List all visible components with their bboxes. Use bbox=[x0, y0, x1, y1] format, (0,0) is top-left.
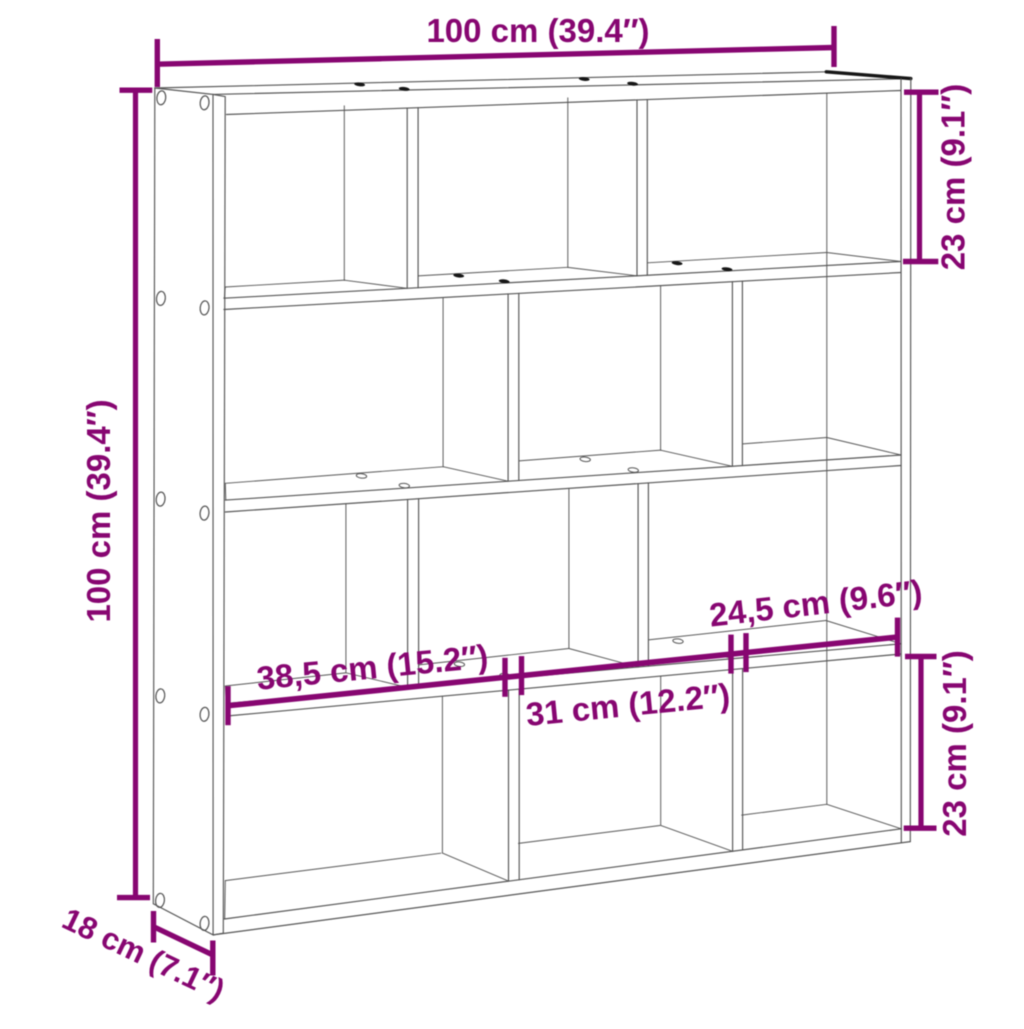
svg-text:100 cm (39.4″): 100 cm (39.4″) bbox=[426, 12, 649, 49]
svg-text:23 cm (9.1″): 23 cm (9.1″) bbox=[935, 84, 972, 270]
svg-text:100 cm (39.4″): 100 cm (39.4″) bbox=[80, 399, 117, 622]
svg-text:23 cm (9.1″): 23 cm (9.1″) bbox=[936, 650, 973, 836]
